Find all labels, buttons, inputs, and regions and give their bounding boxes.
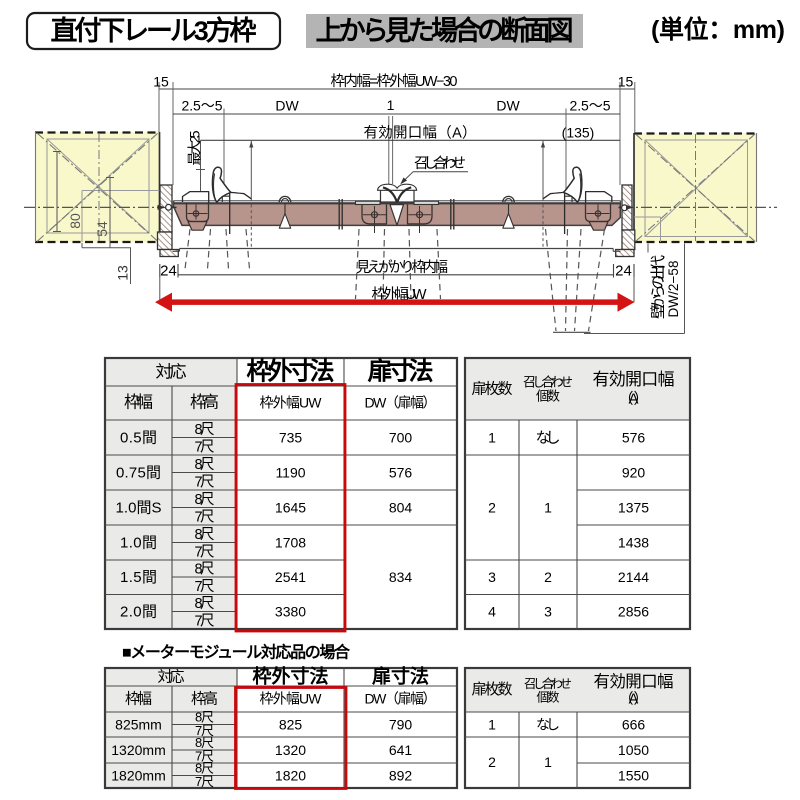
- svg-text:1320: 1320: [275, 742, 306, 758]
- svg-text:DW: DW: [275, 98, 299, 114]
- svg-text:有効開口幅（A）: 有効開口幅（A）: [364, 125, 477, 142]
- svg-text:576: 576: [389, 465, 413, 481]
- svg-text:825: 825: [279, 717, 303, 733]
- svg-text:枠外幅UW: 枠外幅UW: [260, 691, 323, 707]
- svg-text:扉寸法: 扉寸法: [368, 357, 434, 386]
- svg-text:1: 1: [387, 97, 395, 113]
- svg-text:扉枚数: 扉枚数: [472, 681, 513, 698]
- svg-text:個数: 個数: [536, 389, 560, 404]
- svg-text:召し合わせ: 召し合わせ: [523, 375, 573, 390]
- svg-text:扉枚数: 扉枚数: [472, 381, 513, 398]
- svg-text:壁からの出代: 壁からの出代: [650, 255, 667, 319]
- svg-text:1050: 1050: [618, 742, 649, 758]
- svg-text:3380: 3380: [275, 604, 306, 620]
- svg-text:576: 576: [622, 430, 646, 446]
- svg-text:8尺: 8尺: [195, 561, 215, 578]
- svg-text:8尺: 8尺: [195, 456, 215, 473]
- svg-text:892: 892: [389, 768, 413, 784]
- svg-text:枠内幅=枠外幅UW−30: 枠内幅=枠外幅UW−30: [331, 73, 458, 90]
- svg-text:1320mm: 1320mm: [111, 742, 165, 758]
- svg-text:(単位：mm): (単位：mm): [651, 15, 785, 44]
- svg-text:1550: 1550: [618, 768, 649, 784]
- svg-text:4: 4: [488, 604, 496, 620]
- svg-text:834: 834: [389, 569, 413, 585]
- svg-text:DW（扉幅）: DW（扉幅）: [365, 691, 437, 707]
- svg-text:有効開口幅: 有効開口幅: [593, 370, 675, 389]
- svg-text:7尺: 7尺: [195, 508, 215, 525]
- svg-text:扉寸法: 扉寸法: [372, 665, 429, 688]
- svg-text:枠幅: 枠幅: [125, 691, 152, 708]
- svg-text:個数: 個数: [537, 690, 560, 705]
- svg-text:7尺: 7尺: [195, 612, 215, 629]
- svg-text:2: 2: [488, 500, 496, 516]
- svg-text:80: 80: [67, 213, 83, 229]
- svg-text:対応: 対応: [158, 669, 185, 686]
- svg-text:1: 1: [544, 754, 552, 770]
- svg-text:1.0間: 1.0間: [120, 535, 157, 552]
- svg-text:召し合わせ: 召し合わせ: [524, 676, 572, 691]
- svg-text:54: 54: [94, 221, 110, 237]
- svg-text:上から見た場合の断面図: 上から見た場合の断面図: [316, 15, 574, 46]
- svg-text:DW（扉幅）: DW（扉幅）: [365, 395, 437, 411]
- svg-text:7尺: 7尺: [195, 438, 215, 455]
- svg-text:0.75間: 0.75間: [116, 465, 161, 482]
- svg-text:なし: なし: [536, 430, 561, 447]
- svg-text:700: 700: [389, 430, 413, 446]
- svg-text:1.5間: 1.5間: [120, 569, 157, 586]
- svg-text:見えがかり枠内幅: 見えがかり枠内幅: [356, 259, 448, 276]
- svg-text:13: 13: [115, 265, 131, 281]
- svg-text:枠外寸法: 枠外寸法: [247, 357, 335, 386]
- svg-text:1820mm: 1820mm: [111, 768, 165, 784]
- svg-text:2.5〜5: 2.5〜5: [182, 98, 223, 114]
- svg-text:DW/2−58: DW/2−58: [666, 261, 681, 318]
- svg-text:1438: 1438: [618, 535, 649, 551]
- svg-text:15: 15: [153, 74, 169, 90]
- svg-text:(135): (135): [562, 125, 595, 141]
- svg-text:枠高: 枠高: [191, 691, 218, 708]
- svg-text:枠外寸法: 枠外寸法: [253, 665, 329, 688]
- svg-text:1190: 1190: [275, 465, 305, 481]
- svg-text:3: 3: [488, 569, 496, 585]
- svg-text:枠外幅UW: 枠外幅UW: [260, 395, 323, 411]
- svg-text:8尺: 8尺: [195, 421, 215, 438]
- svg-text:24: 24: [615, 263, 632, 280]
- svg-text:7尺: 7尺: [195, 543, 215, 560]
- svg-text:2.5〜5: 2.5〜5: [570, 98, 611, 114]
- svg-text:2856: 2856: [618, 604, 649, 620]
- svg-text:1.0間S: 1.0間S: [116, 500, 162, 517]
- svg-text:825mm: 825mm: [115, 717, 162, 733]
- svg-text:15: 15: [618, 74, 634, 90]
- svg-text:1: 1: [488, 717, 496, 733]
- svg-text:対応: 対応: [156, 363, 187, 382]
- svg-text:920: 920: [622, 465, 646, 481]
- svg-text:（A）: （A）: [619, 691, 648, 708]
- svg-text:枠高: 枠高: [190, 393, 219, 412]
- svg-text:2: 2: [488, 754, 496, 770]
- svg-text:24: 24: [160, 263, 177, 280]
- svg-text:7尺: 7尺: [195, 473, 215, 490]
- svg-text:召し合わせ: 召し合わせ: [414, 155, 466, 172]
- svg-text:641: 641: [389, 742, 413, 758]
- svg-text:有効開口幅: 有効開口幅: [594, 672, 674, 691]
- svg-text:2144: 2144: [618, 569, 649, 585]
- svg-text:804: 804: [389, 500, 413, 516]
- svg-text:1375: 1375: [618, 500, 649, 516]
- svg-text:2541: 2541: [275, 569, 306, 585]
- svg-text:（A）: （A）: [619, 391, 649, 408]
- svg-text:1645: 1645: [275, 500, 306, 516]
- svg-text:1708: 1708: [275, 535, 306, 551]
- svg-text:1820: 1820: [275, 768, 306, 784]
- svg-text:7尺: 7尺: [195, 774, 214, 789]
- svg-text:2.0間: 2.0間: [120, 604, 157, 621]
- svg-text:735: 735: [279, 430, 303, 446]
- svg-text:なし: なし: [536, 717, 560, 733]
- svg-text:■メーターモジュール対応品の場合: ■メーターモジュール対応品の場合: [122, 643, 351, 662]
- svg-text:1: 1: [544, 500, 552, 516]
- svg-text:0.5間: 0.5間: [120, 430, 157, 447]
- svg-text:2: 2: [544, 569, 552, 585]
- svg-text:最大25: 最大25: [187, 130, 203, 165]
- svg-text:DW: DW: [496, 98, 520, 114]
- svg-text:7尺: 7尺: [195, 578, 215, 595]
- svg-text:枠幅: 枠幅: [124, 393, 153, 412]
- svg-text:1: 1: [488, 430, 496, 446]
- svg-text:3: 3: [544, 604, 552, 620]
- svg-text:8尺: 8尺: [195, 491, 215, 508]
- svg-text:8尺: 8尺: [195, 526, 215, 543]
- svg-text:666: 666: [622, 717, 646, 733]
- svg-text:790: 790: [389, 717, 413, 733]
- svg-text:8尺: 8尺: [195, 595, 215, 612]
- svg-text:直付下レール3方枠: 直付下レール3方枠: [51, 15, 257, 46]
